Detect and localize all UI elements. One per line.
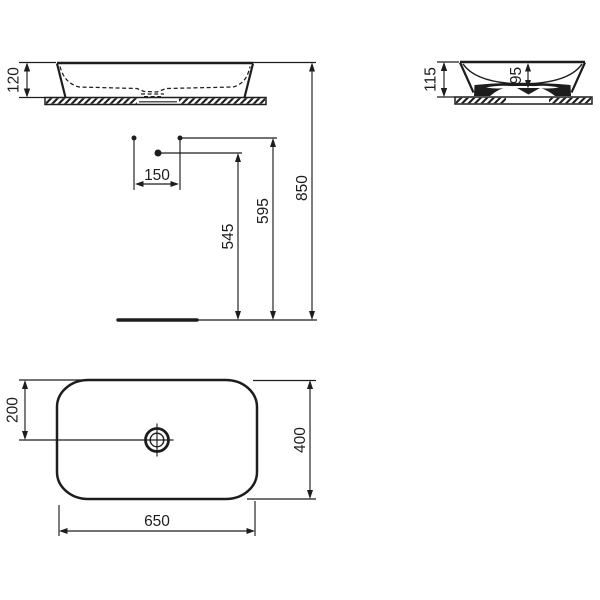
spout-dot [155,150,162,157]
dim-115-label: 115 [423,67,440,92]
front-drain-hidden-line [141,94,164,97]
side-section-view: 115 95 [423,62,593,104]
dim-595-label: 595 [255,198,272,224]
dim-95-label: 95 [508,67,525,84]
front-elevation-view: 120 [6,63,317,105]
dim-850: 850 [294,63,315,321]
side-drain-boss [517,88,540,95]
side-basin-right-edge [572,63,586,93]
dim-850-label: 850 [294,175,311,201]
dim-400-label: 400 [292,427,309,453]
dim-95: 95 [508,63,531,89]
dim-650-label: 650 [144,513,170,530]
tap-hole-dot-right [178,136,183,141]
front-countertop-hatch-left [46,98,137,103]
side-countertop-hatch-left [456,98,506,103]
dim-595: 595 [255,138,276,320]
dim-650: 650 [59,501,255,536]
dim-115: 115 [423,62,460,97]
dim-545-label: 545 [220,224,237,250]
plan-view: 200 400 650 [5,380,317,536]
dim-150: 150 [135,167,179,187]
side-basin-left-edge [460,63,474,93]
side-countertop-hatch-right [549,98,591,103]
tap-hole-dot-left [132,136,137,141]
dim-120: 120 [6,63,57,98]
technical-drawing-page: 120 115 95 [0,0,600,600]
front-bowl-hidden-line [60,67,250,93]
dim-545: 545 [220,153,241,320]
dim-200-label: 200 [5,397,22,423]
dim-150-label: 150 [144,167,170,184]
front-basin-right-edge [245,64,254,98]
dim-120-label: 120 [6,67,23,93]
technical-drawing-canvas: 120 115 95 [0,0,600,600]
front-countertop-hatch-right [179,98,265,103]
